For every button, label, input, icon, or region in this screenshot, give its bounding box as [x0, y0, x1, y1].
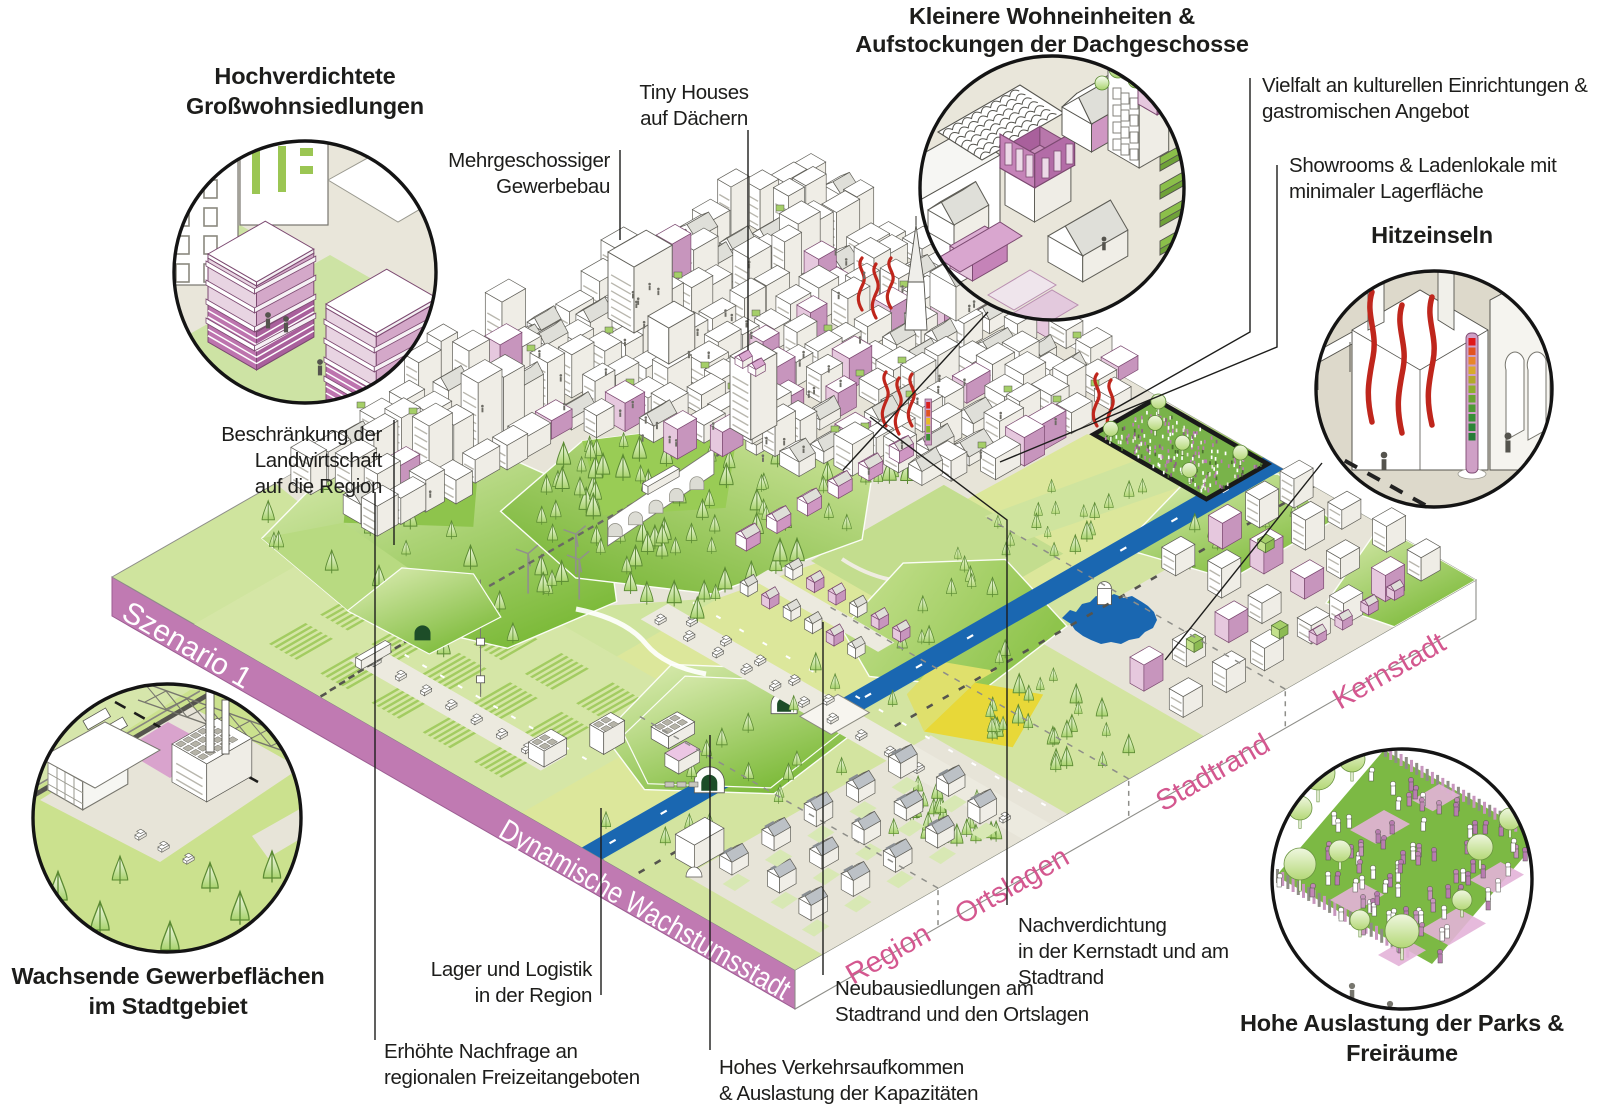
svg-text:gastromischen Angebot: gastromischen Angebot: [1262, 100, 1470, 123]
svg-text:Gewerbebau: Gewerbebau: [496, 175, 610, 198]
svg-text:Neubausiedlungen am: Neubausiedlungen am: [835, 977, 1034, 1000]
svg-text:Aufstockungen der Dachgeschoss: Aufstockungen der Dachgeschosse: [855, 31, 1249, 57]
svg-text:Lager und Logistik: Lager und Logistik: [431, 958, 593, 981]
svg-text:Vielfalt an kulturellen Einric: Vielfalt an kulturellen Einrichtungen &: [1262, 74, 1588, 97]
svg-text:Wachsende Gewerbeflächen: Wachsende Gewerbeflächen: [12, 963, 325, 989]
svg-text:Mehrgeschossiger: Mehrgeschossiger: [448, 149, 610, 172]
svg-text:Hochverdichtete: Hochverdichtete: [214, 63, 395, 89]
svg-text:auf die Region: auf die Region: [255, 475, 382, 498]
svg-text:auf Dächern: auf Dächern: [640, 107, 748, 130]
svg-text:Erhöhte Nachfrage an: Erhöhte Nachfrage an: [384, 1040, 578, 1063]
svg-text:Freiräume: Freiräume: [1346, 1040, 1458, 1066]
svg-text:Stadtrand: Stadtrand: [1018, 966, 1104, 989]
svg-text:Landwirtschaft: Landwirtschaft: [255, 449, 383, 472]
svg-text:Kleinere Wohneinheiten &: Kleinere Wohneinheiten &: [909, 3, 1195, 29]
svg-text:Beschränkung der: Beschränkung der: [221, 423, 382, 446]
svg-text:regionalen Freizeitangeboten: regionalen Freizeitangeboten: [384, 1066, 640, 1089]
svg-text:Showrooms & Ladenlokale mit: Showrooms & Ladenlokale mit: [1289, 154, 1557, 177]
svg-text:Nachverdichtung: Nachverdichtung: [1018, 914, 1167, 937]
svg-text:im Stadtgebiet: im Stadtgebiet: [88, 993, 247, 1019]
svg-text:in der Kernstadt und am: in der Kernstadt und am: [1018, 940, 1229, 963]
svg-text:minimaler Lagerfläche: minimaler Lagerfläche: [1289, 180, 1483, 203]
svg-text:Großwohnsiedlungen: Großwohnsiedlungen: [186, 93, 424, 119]
svg-text:Tiny Houses: Tiny Houses: [639, 81, 748, 104]
svg-text:Stadtrand und den Ortslagen: Stadtrand und den Ortslagen: [835, 1003, 1089, 1026]
svg-text:& Auslastung der Kapazitäten: & Auslastung der Kapazitäten: [719, 1082, 978, 1105]
svg-text:in der Region: in der Region: [475, 984, 592, 1007]
svg-text:Hitzeinseln: Hitzeinseln: [1371, 222, 1493, 248]
svg-text:Hohes Verkehrsaufkommen: Hohes Verkehrsaufkommen: [719, 1056, 964, 1079]
svg-text:Hohe Auslastung der Parks &: Hohe Auslastung der Parks &: [1240, 1010, 1564, 1036]
